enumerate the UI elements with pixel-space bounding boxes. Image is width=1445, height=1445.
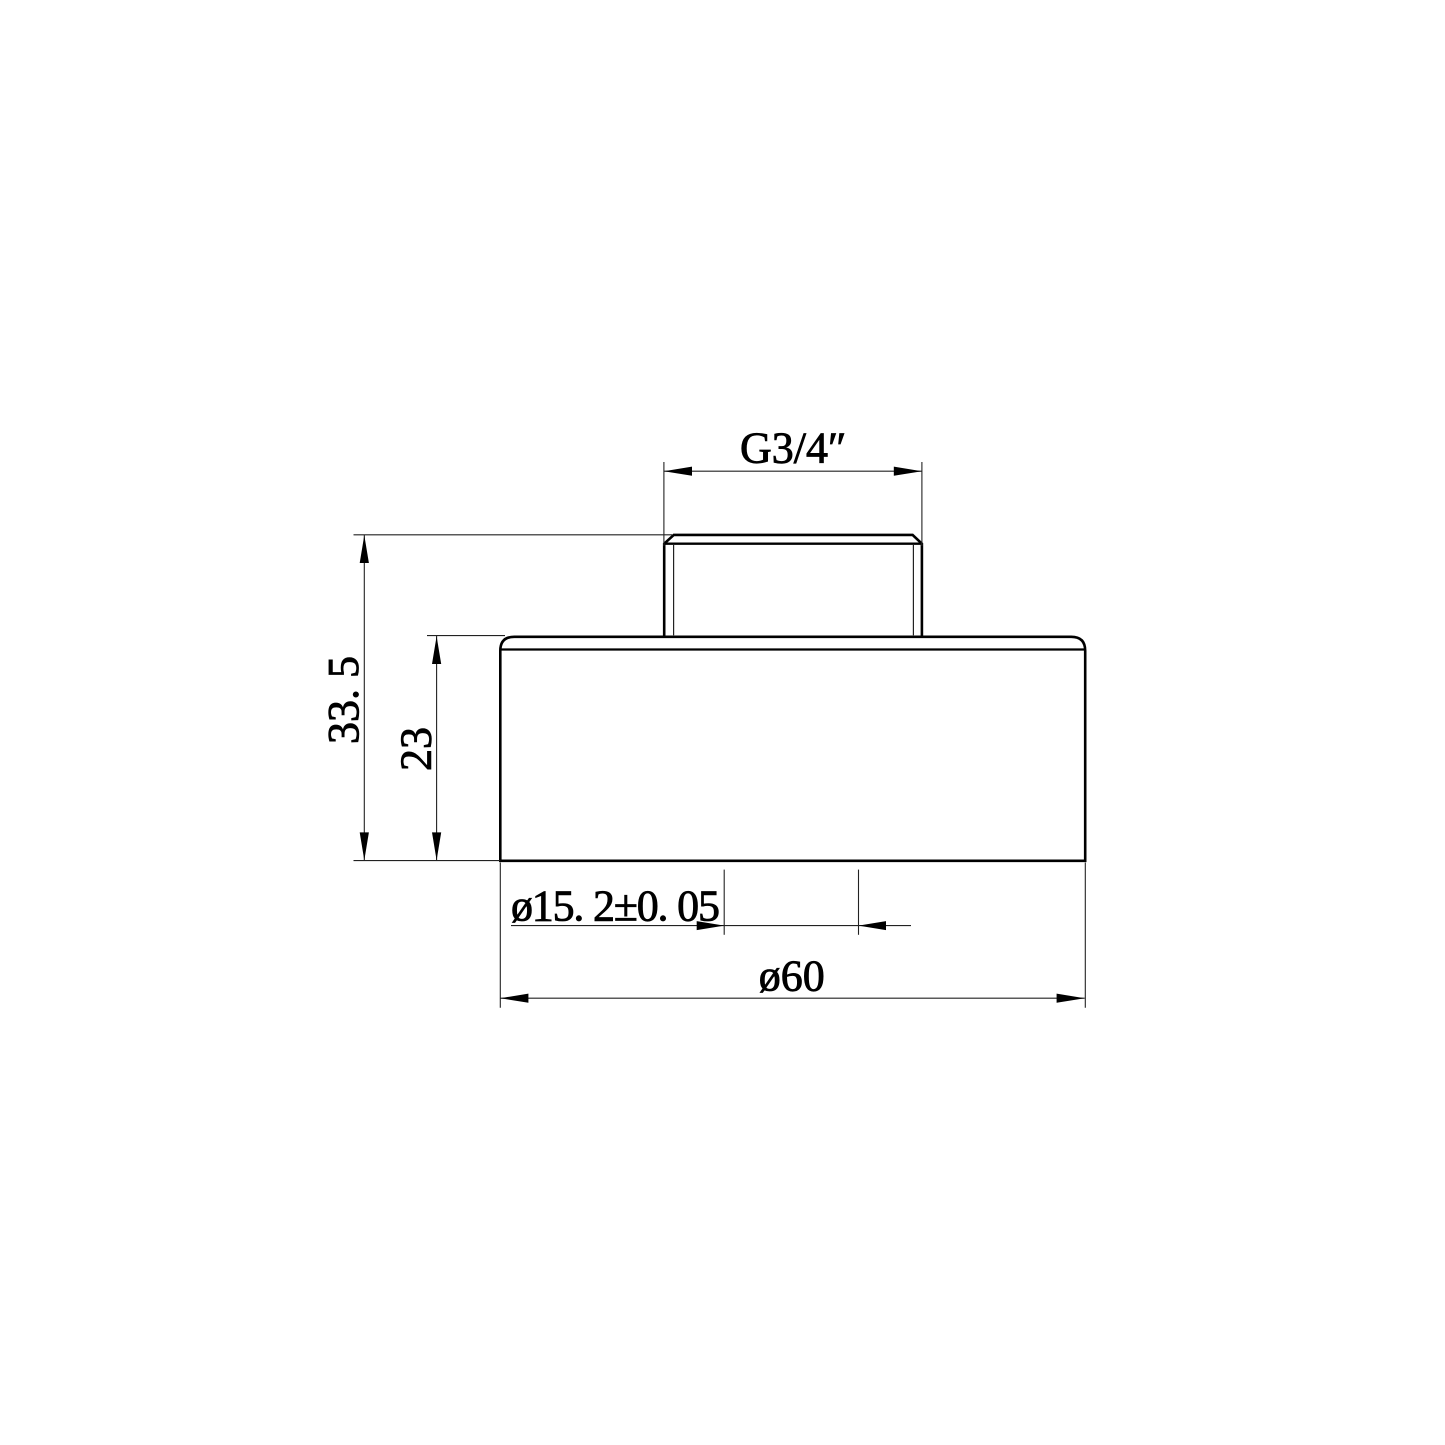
svg-text:23: 23	[392, 727, 441, 771]
svg-text:G3/4″: G3/4″	[740, 424, 846, 473]
svg-text:33. 5: 33. 5	[319, 656, 368, 744]
svg-text:ø60: ø60	[759, 952, 825, 1001]
svg-text:ø15. 2±0. 05: ø15. 2±0. 05	[511, 882, 719, 931]
